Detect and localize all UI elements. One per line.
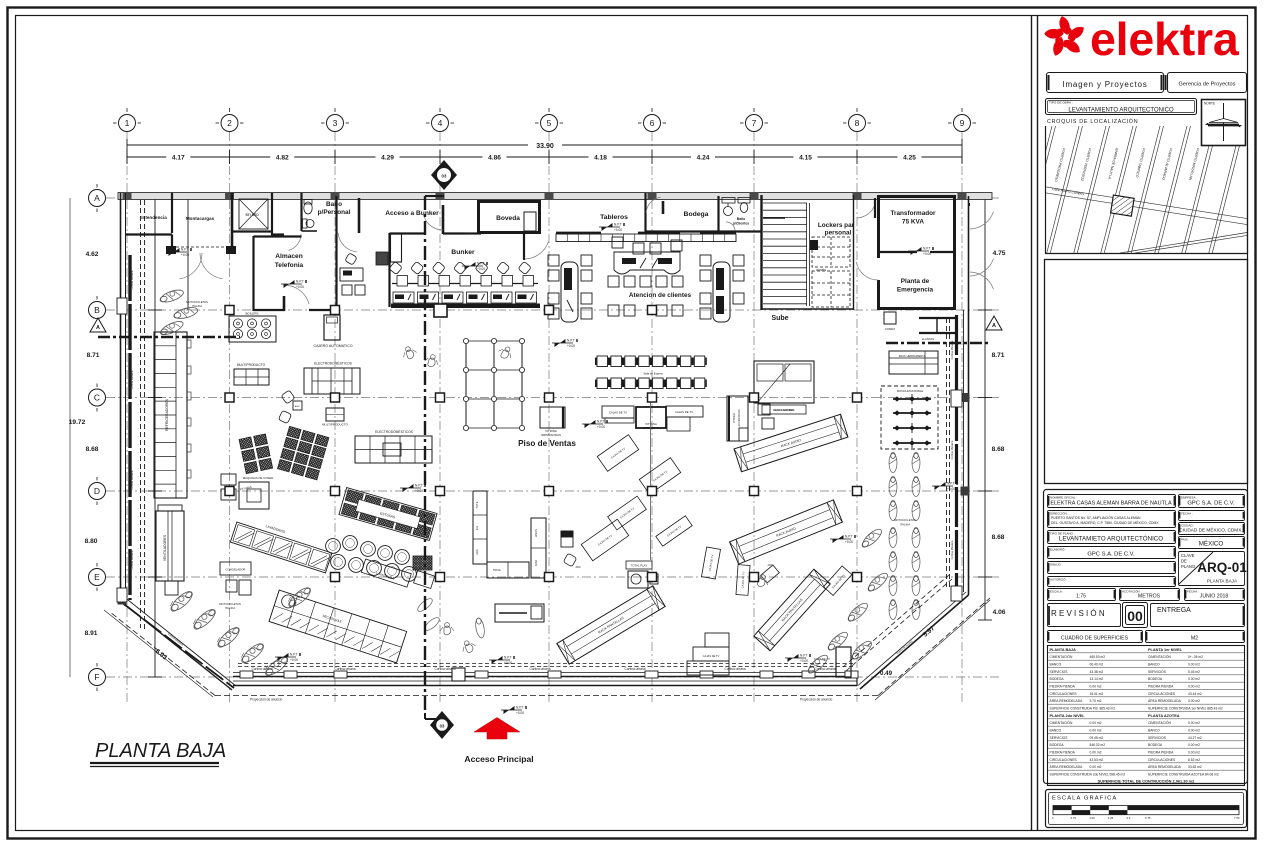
svg-text:SERVICIOS: SERVICIOS — [1050, 670, 1069, 674]
svg-text:+0.00: +0.00 — [477, 267, 485, 271]
svg-text:8.68: 8.68 — [992, 446, 1005, 453]
svg-text:0.00 m2: 0.00 m2 — [1090, 729, 1102, 733]
svg-text:4.15: 4.15 — [799, 155, 812, 162]
svg-text:Cortina Metalica: Cortina Metalica — [950, 440, 954, 459]
svg-text:Gerencia de Proyectos: Gerencia de Proyectos — [1179, 82, 1236, 88]
svg-text:N.P.T: N.P.T — [923, 247, 931, 251]
svg-text:p/Personal: p/Personal — [318, 209, 351, 216]
svg-text:MULTIPRODUCTO: MULTIPRODUCTO — [237, 363, 266, 367]
svg-text:0.00 m2: 0.00 m2 — [1188, 751, 1200, 755]
svg-text:8.91: 8.91 — [85, 630, 98, 637]
svg-text:LEVANTAMIETO ARQUITECTÓNICO: LEVANTAMIETO ARQUITECTÓNICO — [1059, 536, 1163, 543]
svg-text:GPC S.A. DE C.V.: GPC S.A. DE C.V. — [1087, 552, 1135, 558]
svg-text:B: B — [94, 305, 100, 315]
svg-text:+0.00: +0.00 — [296, 285, 304, 289]
svg-text:CAJAS DE TV: CAJAS DE TV — [609, 411, 627, 415]
svg-text:ESCALA GRAFICA: ESCALA GRAFICA — [1052, 796, 1117, 802]
svg-text:ARQ-01: ARQ-01 — [1197, 560, 1247, 575]
svg-text:Bunker: Bunker — [451, 249, 475, 256]
svg-text:Baño: Baño — [737, 217, 745, 221]
svg-text:Bodega: Bodega — [684, 211, 709, 218]
svg-text:ÁREA REMODELADA: ÁREA REMODELADA — [1050, 765, 1084, 769]
svg-text:ELECTRODOMÉSTICOS: ELECTRODOMÉSTICOS — [375, 429, 414, 434]
svg-text:PLANO: PLANO — [1181, 564, 1196, 569]
svg-text:0.00 m2: 0.00 m2 — [1188, 721, 1200, 725]
svg-text:ELABORÓ :: ELABORÓ : — [1050, 546, 1066, 551]
svg-text:Cortina Metalica: Cortina Metalica — [130, 370, 134, 389]
svg-text:ADN: ADN — [575, 566, 580, 569]
svg-text:4.82: 4.82 — [276, 155, 289, 162]
svg-text:1: 1 — [125, 118, 130, 128]
svg-text:SUPERFICIE CONSTRUIDA AZOTEA: SUPERFICIE CONSTRUIDA AZOTEA 84.06 m2 — [1148, 773, 1219, 777]
svg-text:+0.00: +0.00 — [290, 658, 298, 662]
svg-text:Emergencia: Emergencia — [897, 287, 934, 294]
svg-text:BODEGA: BODEGA — [1050, 677, 1065, 681]
svg-text:Cortina Metalica: Cortina Metalica — [950, 340, 954, 359]
svg-text:GPC S.A. DE C.V.: GPC S.A. DE C.V. — [1187, 501, 1235, 507]
svg-text:SERVICIOS: SERVICIOS — [1148, 736, 1167, 740]
svg-text:4.06: 4.06 — [993, 609, 1006, 616]
svg-text:+0.00: +0.00 — [516, 711, 524, 715]
svg-text:BANCO: BANCO — [1148, 663, 1160, 667]
svg-text:2.25: 2.25 — [1108, 816, 1114, 820]
svg-text:closets: closets — [816, 268, 826, 272]
svg-text:CAJERO AUTOMATICO: CAJERO AUTOMATICO — [313, 344, 352, 348]
svg-text:Cortina urbana: Cortina urbana — [334, 667, 355, 671]
svg-text:Imagen y Proyectos: Imagen y Proyectos — [1062, 80, 1147, 89]
svg-text:8.71: 8.71 — [992, 352, 1005, 359]
svg-text:ELEKTRA CASAS ALEMAN BARRA DE: ELEKTRA CASAS ALEMAN BARRA DE NAUTLA — [1050, 501, 1172, 507]
svg-text:VIDEOJUEGOS: VIDEOJUEGOS — [642, 426, 661, 430]
svg-text:COMEX: COMEX — [885, 327, 895, 331]
svg-text:+0.00: +0.00 — [947, 487, 955, 491]
svg-text:SUPERFICIE CONSTRUIDA P.B.: SUPERFICIE CONSTRUIDA P.B. 865.43 m2 — [1050, 707, 1116, 711]
svg-text:MOCICLETAS DOBLE: MOCICLETAS DOBLE — [897, 389, 923, 393]
svg-text:A: A — [992, 323, 996, 329]
svg-text:CAJAS DE TV: CAJAS DE TV — [675, 410, 693, 414]
svg-text:33.63 m2: 33.63 m2 — [1188, 765, 1202, 769]
svg-text:TIPO DE OBRA :: TIPO DE OBRA : — [1049, 101, 1073, 105]
svg-text:CIRCULACIONES: CIRCULACIONES — [1148, 758, 1176, 762]
svg-text:M2: M2 — [1191, 636, 1198, 642]
svg-text:4.86: 4.86 — [488, 155, 501, 162]
svg-text:NOMBRE OFICIAL :: NOMBRE OFICIAL : — [1050, 495, 1077, 499]
svg-text:ÁREA REMODELADA: ÁREA REMODELADA — [1148, 765, 1182, 769]
svg-text:MOTOCICLETAS: MOTOCICLETAS — [894, 518, 916, 522]
svg-text:+0.00: +0.00 — [923, 252, 931, 256]
svg-text:ÁREA REMODELADA: ÁREA REMODELADA — [1148, 699, 1182, 703]
svg-text:0.00 m2: 0.00 m2 — [1188, 677, 1200, 681]
svg-text:VENTILADORES: VENTILADORES — [163, 534, 167, 561]
svg-text:06.40 m2: 06.40 m2 — [1090, 663, 1104, 667]
svg-text:4.75: 4.75 — [993, 250, 1006, 257]
svg-text:ENTREGA: ENTREGA — [1157, 607, 1191, 614]
svg-text:3.75: 3.75 — [1145, 816, 1151, 820]
svg-text:BODEGA: BODEGA — [1148, 677, 1163, 681]
svg-text:+0.00: +0.00 — [614, 228, 622, 232]
svg-text:D: D — [94, 486, 100, 496]
svg-text:0.00 m2: 0.00 m2 — [1188, 743, 1200, 747]
svg-text:LLANTAS: LLANTAS — [922, 337, 934, 341]
svg-text:4.62: 4.62 — [86, 251, 99, 258]
svg-text:00: 00 — [1127, 608, 1143, 624]
svg-text:PLANTA 2do NIVEL: PLANTA 2do NIVEL — [1050, 714, 1086, 718]
svg-text:8.68: 8.68 — [992, 534, 1005, 541]
svg-text:43.38 m2: 43.38 m2 — [1090, 670, 1104, 674]
svg-text:MAQUINAS DE COSER: MAQUINAS DE COSER — [243, 476, 273, 480]
svg-text:33.90: 33.90 — [536, 143, 554, 150]
svg-text:1:75: 1:75 — [1076, 594, 1086, 600]
svg-text:+0.00: +0.00 — [567, 344, 575, 348]
svg-text:Proyección de anuncio: Proyección de anuncio — [800, 698, 832, 702]
svg-text:Lockers par: Lockers par — [818, 222, 855, 229]
svg-text:NORTE: NORTE — [1204, 102, 1215, 106]
svg-text:MULTIPRODUCTO: MULTIPRODUCTO — [322, 423, 349, 427]
svg-text:Cortina urbana: Cortina urbana — [724, 667, 745, 671]
svg-text:ADN: ADN — [767, 564, 772, 567]
svg-text:ADN: ADN — [475, 549, 479, 555]
svg-text:ÁREA REMODELADA: ÁREA REMODELADA — [1050, 699, 1084, 703]
svg-text:03: 03 — [440, 724, 445, 729]
svg-text:PLANTA AZOTEA: PLANTA AZOTEA — [1148, 714, 1180, 718]
svg-text:A: A — [96, 325, 100, 331]
svg-text:5.45 m2: 5.45 m2 — [1188, 670, 1200, 674]
svg-text:75 KVA: 75 KVA — [902, 219, 924, 226]
svg-text:DIBUJO :: DIBUJO : — [1050, 562, 1063, 566]
svg-text:Cortina Metalica: Cortina Metalica — [130, 270, 134, 289]
svg-text:AUTORIZÓ :: AUTORIZÓ : — [1050, 576, 1067, 581]
svg-text:8.52 m2: 8.52 m2 — [1188, 758, 1200, 762]
svg-text:N.P.T: N.P.T — [477, 262, 485, 266]
svg-text:PLANTA 1er NIVEL: PLANTA 1er NIVEL — [1148, 648, 1183, 652]
svg-text:3.70 m2: 3.70 m2 — [1090, 699, 1102, 703]
svg-text:PIEDRA PIENDA: PIEDRA PIENDA — [1050, 685, 1076, 689]
svg-text:4.25: 4.25 — [903, 155, 916, 162]
svg-text:ELECTRODOMÉSTICOS: ELECTRODOMÉSTICOS — [314, 361, 353, 366]
svg-text:VITRINA: VITRINA — [645, 422, 657, 426]
svg-text:JUNIO 2018: JUNIO 2018 — [1200, 594, 1229, 600]
svg-text:personal: personal — [825, 230, 852, 237]
svg-text:Acceso Principal: Acceso Principal — [464, 754, 533, 764]
svg-text:SERVICIOS: SERVICIOS — [1148, 670, 1167, 674]
svg-text:0.00 m2: 0.00 m2 — [1188, 685, 1200, 689]
svg-text:Atencion de clientes: Atencion de clientes — [629, 292, 692, 299]
svg-text:Baño: Baño — [326, 201, 342, 208]
svg-text:Cortina urbana: Cortina urbana — [529, 667, 550, 671]
svg-text:REVISIÓN: REVISIÓN — [1051, 609, 1107, 618]
svg-text:4.29: 4.29 — [381, 155, 394, 162]
svg-text:Cortina Metalica: Cortina Metalica — [130, 550, 134, 569]
svg-text:CIMENTACIÓN: CIMENTACIÓN — [1148, 720, 1171, 725]
svg-text:REFRIGERADORES: REFRIGERADORES — [165, 398, 169, 431]
svg-text:ITALIKA: ITALIKA — [900, 523, 910, 527]
svg-text:13.14 m2: 13.14 m2 — [1090, 677, 1104, 681]
svg-text:N.P.T: N.P.T — [516, 706, 524, 710]
svg-text:IMPRESORAS: IMPRESORAS — [541, 433, 561, 437]
svg-text:C: C — [94, 393, 100, 403]
svg-text:Tableros: Tableros — [600, 214, 628, 221]
svg-text:elektra: elektra — [1090, 13, 1240, 65]
svg-text:A: A — [94, 193, 100, 203]
svg-text:Montacargas: Montacargas — [186, 216, 215, 221]
svg-text:BODEGA: BODEGA — [1148, 743, 1163, 747]
svg-text:+0.00: +0.00 — [504, 661, 512, 665]
svg-text:ITALIKA: ITALIKA — [192, 304, 202, 308]
svg-text:0+-.05 m2: 0+-.05 m2 — [1188, 655, 1203, 659]
svg-text:VITRINA: VITRINA — [732, 413, 736, 424]
svg-text:3: 3 — [333, 118, 338, 128]
svg-text:PLANTA BAJA: PLANTA BAJA — [1050, 648, 1077, 652]
svg-text:Piso de Ventas: Piso de Ventas — [518, 439, 576, 448]
svg-text:BODEGA: BODEGA — [1050, 743, 1065, 747]
svg-text:+0.00: +0.00 — [845, 540, 853, 544]
svg-text:0.75: 0.75 — [1071, 816, 1077, 820]
svg-text:FECHA :: FECHA : — [1187, 589, 1199, 593]
svg-text:16.01 m2: 16.01 m2 — [1090, 692, 1104, 696]
svg-text:BANCO: BANCO — [1050, 663, 1062, 667]
svg-text:6: 6 — [650, 118, 655, 128]
svg-text:DE: DE — [1181, 559, 1187, 564]
svg-text:MÉXICO: MÉXICO — [1199, 541, 1224, 548]
svg-text:Transformador: Transformador — [890, 210, 936, 217]
svg-text:Sala de Espera: Sala de Espera — [643, 372, 663, 376]
svg-text:546.32 m2: 546.32 m2 — [1090, 743, 1106, 747]
svg-text:CUADRO DE SUPERFICIES: CUADRO DE SUPERFICIES — [1061, 636, 1129, 642]
svg-text:8.80: 8.80 — [85, 538, 98, 545]
svg-text:N.P.T: N.P.T — [415, 484, 423, 488]
svg-text:UNION: UNION — [534, 529, 538, 537]
svg-text:ATAR: ATAR — [534, 560, 538, 567]
svg-text:N.P.T: N.P.T — [181, 248, 189, 252]
svg-text:N.P.T: N.P.T — [504, 656, 512, 660]
svg-text:RACK HERRAMIENTA: RACK HERRAMIENTA — [899, 354, 926, 358]
svg-text:ACCESORIOS: ACCESORIOS — [737, 409, 741, 427]
svg-text:N.P.T: N.P.T — [597, 420, 605, 424]
svg-text:1.50: 1.50 — [1089, 816, 1095, 820]
svg-text:CROQUIS DE LOCALIZACIÓN: CROQUIS DE LOCALIZACIÓN — [1047, 118, 1138, 125]
svg-text:8.71: 8.71 — [87, 352, 100, 359]
svg-text:LEVANTAMIENTO ARQUITECTONICO: LEVANTAMIENTO ARQUITECTONICO — [1068, 108, 1174, 114]
svg-text:Acceso a Bunker: Acceso a Bunker — [385, 210, 439, 217]
svg-text:R.U: R.U — [475, 526, 479, 531]
svg-text:+0.00: +0.00 — [181, 253, 189, 257]
svg-text:PAIS :: PAIS : — [1181, 537, 1189, 541]
svg-text:43.53 m2: 43.53 m2 — [1090, 758, 1104, 762]
svg-text:PUERTO SANTOS No. 57, AMPLIACI: PUERTO SANTOS No. 57, AMPLIACIÓN CASAS A… — [1051, 515, 1141, 520]
svg-text:4: 4 — [438, 118, 443, 128]
svg-text:sin uso: sin uso — [245, 212, 259, 217]
svg-text:BANCO: BANCO — [1148, 729, 1160, 733]
svg-text:0.00 m2: 0.00 m2 — [1090, 685, 1102, 689]
svg-text:4.18: 4.18 — [594, 155, 607, 162]
svg-text:Almacen: Almacen — [275, 253, 303, 260]
svg-text:N.P.T: N.P.T — [845, 535, 853, 539]
svg-text:PIEDRA PIENDA: PIEDRA PIENDA — [1148, 751, 1174, 755]
svg-text:TRICIL: TRICIL — [493, 568, 502, 572]
svg-text:SUPERFICIE TOTAL DE CONTRUCCI: SUPERFICIE TOTAL DE CONTRUCCIÓN 2,061.30… — [1098, 779, 1195, 784]
svg-text:Cortina Metalica: Cortina Metalica — [950, 540, 954, 559]
svg-text:PLANTA BAJA: PLANTA BAJA — [95, 740, 226, 762]
svg-text:DEL. GUSTAVO A. MADERO, C.P. 7: DEL. GUSTAVO A. MADERO, C.P. 7580, CIUDA… — [1051, 520, 1159, 525]
svg-text:0.00 m2: 0.00 m2 — [1090, 765, 1102, 769]
svg-text:Cortina Metalica: Cortina Metalica — [130, 470, 134, 489]
svg-text:2: 2 — [227, 118, 232, 128]
svg-text:Intendencia: Intendencia — [141, 215, 167, 220]
svg-text:03: 03 — [442, 174, 447, 179]
svg-text:F: F — [94, 672, 99, 682]
svg-text:SERVICIOS: SERVICIOS — [1050, 736, 1069, 740]
svg-text:CIMENTACIÓN: CIMENTACIÓN — [1050, 654, 1073, 659]
svg-text:PLANTA BAJA: PLANTA BAJA — [1207, 579, 1238, 584]
svg-text:9: 9 — [960, 118, 965, 128]
svg-text:0.00 m2: 0.00 m2 — [1188, 699, 1200, 703]
svg-text:44.27 m2: 44.27 m2 — [1188, 736, 1202, 740]
svg-text:N.P.T: N.P.T — [567, 339, 575, 343]
svg-text:0.00 m2: 0.00 m2 — [1188, 729, 1200, 733]
svg-text:Cortina urbana: Cortina urbana — [624, 667, 645, 671]
svg-text:PIEDRA PIENDA: PIEDRA PIENDA — [1148, 685, 1174, 689]
svg-text:METROS: METROS — [1138, 594, 1161, 600]
svg-text:N.P.T: N.P.T — [947, 482, 955, 486]
svg-text:CIRCULACIONES: CIRCULACIONES — [1148, 692, 1176, 696]
svg-text:3.0: 3.0 — [1126, 816, 1130, 820]
svg-text:N.P.T: N.P.T — [296, 280, 304, 284]
svg-text:SUPERFICIE CONSTRUIDA 1er NIVE: SUPERFICIE CONSTRUIDA 1er NIVEL 865.43 m… — [1148, 707, 1223, 711]
svg-text:4.24: 4.24 — [697, 155, 710, 162]
svg-text:ESCALA :: ESCALA : — [1050, 589, 1064, 593]
svg-text:CIMENTACIÓN: CIMENTACIÓN — [1050, 720, 1073, 725]
svg-text:5: 5 — [547, 118, 552, 128]
svg-text:Cortina urbana: Cortina urbana — [434, 667, 455, 671]
svg-text:Proyección de anuncio: Proyección de anuncio — [250, 698, 282, 702]
svg-text:8.68: 8.68 — [86, 446, 99, 453]
svg-text:DIRECCIÓN :: DIRECCIÓN : — [1050, 510, 1069, 515]
svg-text:+0.00: +0.00 — [800, 659, 808, 663]
svg-text:Boveda: Boveda — [496, 215, 520, 222]
svg-text:CLAVE: CLAVE — [1181, 553, 1195, 558]
svg-text:ADN: ADN — [295, 405, 300, 408]
svg-text:Telefonia: Telefonia — [275, 262, 304, 269]
svg-text:CONGELADOR: CONGELADOR — [226, 568, 246, 572]
svg-text:CIUDAD DE MÉXICO, CDMX.: CIUDAD DE MÉXICO, CDMX. — [1179, 527, 1242, 533]
svg-text:CAJAS DE TV: CAJAS DE TV — [703, 654, 720, 658]
svg-text:CIMENTACIÓN: CIMENTACIÓN — [1148, 654, 1171, 659]
svg-text:19.72: 19.72 — [69, 419, 86, 426]
svg-text:N.P.T: N.P.T — [800, 654, 808, 658]
svg-text:Planta de: Planta de — [901, 278, 930, 285]
svg-text:CIRCULACIONES: CIRCULACIONES — [1050, 692, 1078, 696]
svg-text:p/Clientes: p/Clientes — [733, 222, 749, 226]
svg-text:Sube: Sube — [771, 315, 788, 322]
svg-text:REGULADORES: REGULADORES — [773, 408, 795, 412]
svg-text:TOTE: TOTE — [475, 501, 479, 508]
svg-text:+0.00: +0.00 — [415, 489, 423, 493]
svg-text:7: 7 — [752, 118, 757, 128]
svg-text:N.P.T: N.P.T — [290, 653, 298, 657]
svg-text:BOILERS: BOILERS — [245, 312, 258, 316]
svg-text:ITALIKA: ITALIKA — [225, 606, 235, 610]
svg-text:0.00 m2: 0.00 m2 — [1090, 751, 1102, 755]
svg-text:FECHA :: FECHA : — [1181, 511, 1193, 515]
svg-text:465.53 m2: 465.53 m2 — [1090, 655, 1106, 659]
svg-text:+0.00: +0.00 — [597, 425, 605, 429]
svg-text:43.44 m2: 43.44 m2 — [1188, 692, 1202, 696]
svg-text:TOTAL PLAY: TOTAL PLAY — [631, 564, 648, 568]
svg-text:E: E — [94, 572, 100, 582]
svg-text:EMPRESA :: EMPRESA : — [1181, 495, 1197, 499]
svg-text:09.45 m2: 09.45 m2 — [1090, 736, 1104, 740]
svg-text:N.P.T: N.P.T — [614, 223, 622, 227]
svg-text:7.50: 7.50 — [1234, 816, 1240, 820]
svg-text:SUPERFICIE CONSTRUIDA 2do NIVE: SUPERFICIE CONSTRUIDA 2do NIVEL 598.45 m… — [1050, 773, 1126, 777]
svg-text:CIRCULACIONES: CIRCULACIONES — [1050, 758, 1078, 762]
svg-text:0.00 m2: 0.00 m2 — [1090, 721, 1102, 725]
svg-text:PIEDRA PIENDA: PIEDRA PIENDA — [1050, 751, 1076, 755]
svg-text:BANCO: BANCO — [1050, 729, 1062, 733]
svg-text:0.00 m2: 0.00 m2 — [1188, 663, 1200, 667]
svg-text:4.17: 4.17 — [172, 155, 185, 162]
svg-text:8: 8 — [855, 118, 860, 128]
